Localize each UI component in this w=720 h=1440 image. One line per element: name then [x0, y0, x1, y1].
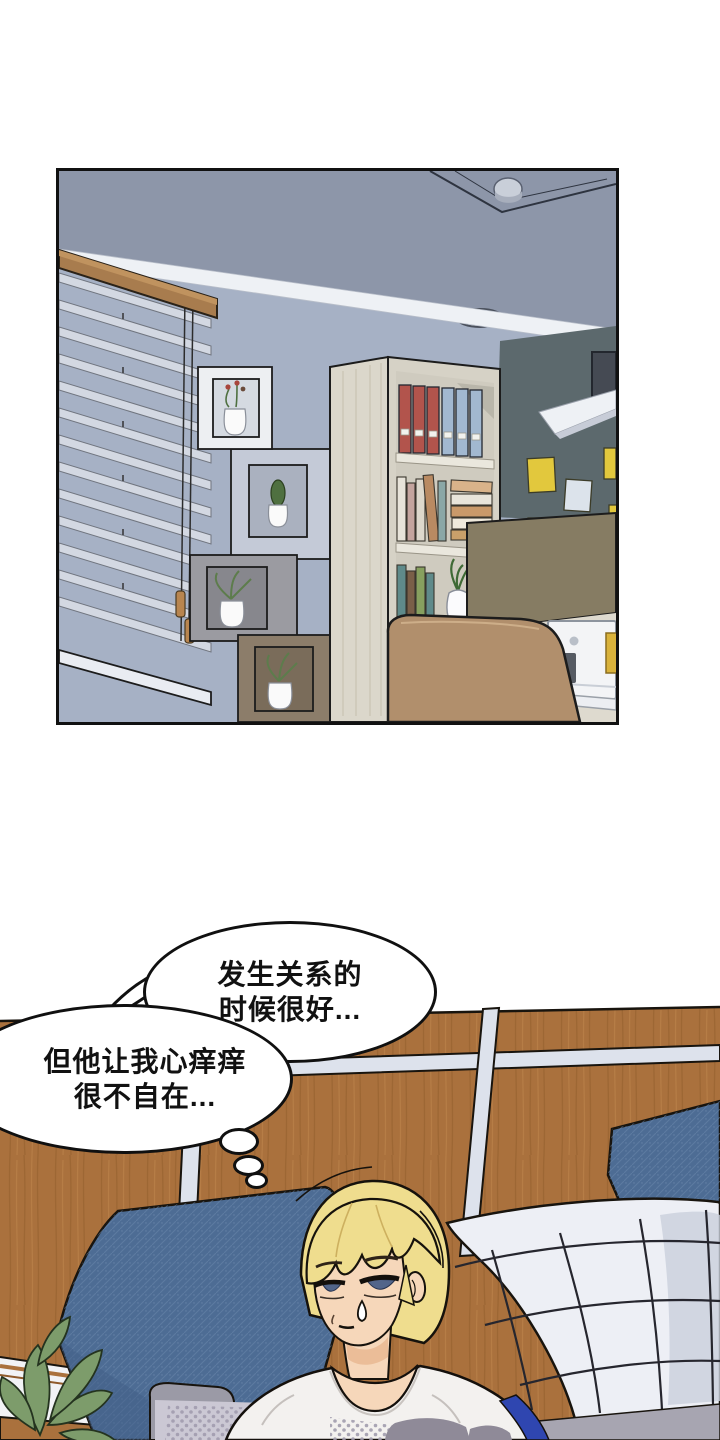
room-panel-art: [59, 171, 616, 722]
comic-page: 发生关系的 时候很好... 但他让我心痒痒 很不自在...: [0, 0, 720, 1440]
cube-shelf-2: [231, 449, 331, 559]
cube-shelf-3: [190, 555, 297, 641]
ceiling-sensor-icon: [494, 178, 522, 203]
cube-shelf-1: [198, 367, 272, 449]
bubble-1-line-1: 发生关系的: [217, 957, 362, 992]
office-chair: [388, 615, 580, 722]
thought-trail-dot: [219, 1128, 259, 1155]
bubble-1-line-2: 时候很好...: [219, 992, 361, 1027]
apple-logo-icon: [570, 637, 579, 646]
accent-wall: [495, 326, 616, 536]
cube-shelf-4: [238, 635, 341, 722]
thought-trail-dot: [245, 1172, 268, 1189]
desk-divider: [467, 513, 616, 631]
bubble-2-line-1: 但他让我心痒痒: [1, 1044, 246, 1079]
binders: [399, 383, 494, 457]
room-panel: [56, 168, 619, 725]
cord-handle: [176, 591, 185, 617]
bubble-2-line-2: 很不自在...: [32, 1079, 216, 1114]
desk-lamp: [606, 633, 616, 673]
